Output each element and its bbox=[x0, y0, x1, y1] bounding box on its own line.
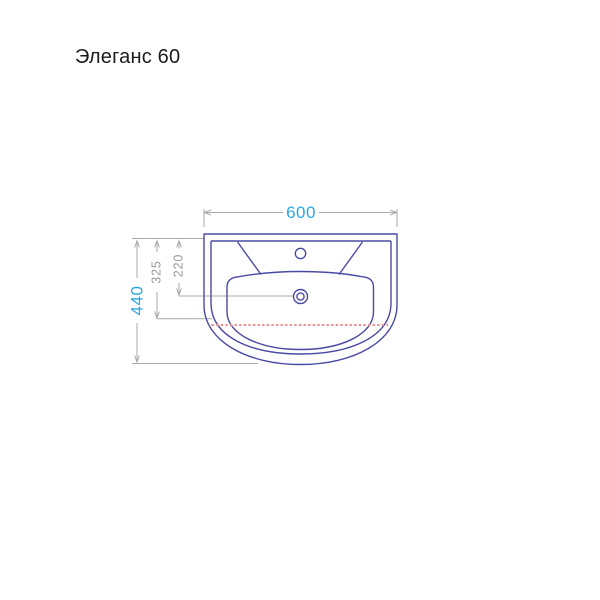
dim-inner-depth-label: 325 bbox=[150, 260, 164, 284]
dim-drain-depth bbox=[177, 241, 293, 296]
drain-hole-outer bbox=[294, 290, 308, 304]
basin-slope-line-right bbox=[339, 242, 363, 275]
dim-drain-depth-label: 220 bbox=[172, 254, 186, 278]
sink-technical-drawing: 600 440 325 220 bbox=[0, 0, 600, 600]
sink-basin-outline bbox=[227, 272, 374, 350]
basin-slope-line-left bbox=[238, 242, 262, 275]
page-background: Элеганс 60 bbox=[0, 0, 600, 600]
dim-overall-width-label: 600 bbox=[286, 203, 316, 222]
faucet-hole bbox=[295, 248, 305, 258]
sink-outer-outline bbox=[204, 234, 397, 365]
sink-outline-group bbox=[204, 234, 397, 365]
dim-overall-depth bbox=[132, 241, 258, 364]
dim-overall-depth-label: 440 bbox=[128, 286, 147, 316]
dimension-lines-group bbox=[132, 209, 397, 364]
drain-hole-inner bbox=[297, 293, 304, 300]
sink-inner-rim bbox=[211, 241, 391, 354]
